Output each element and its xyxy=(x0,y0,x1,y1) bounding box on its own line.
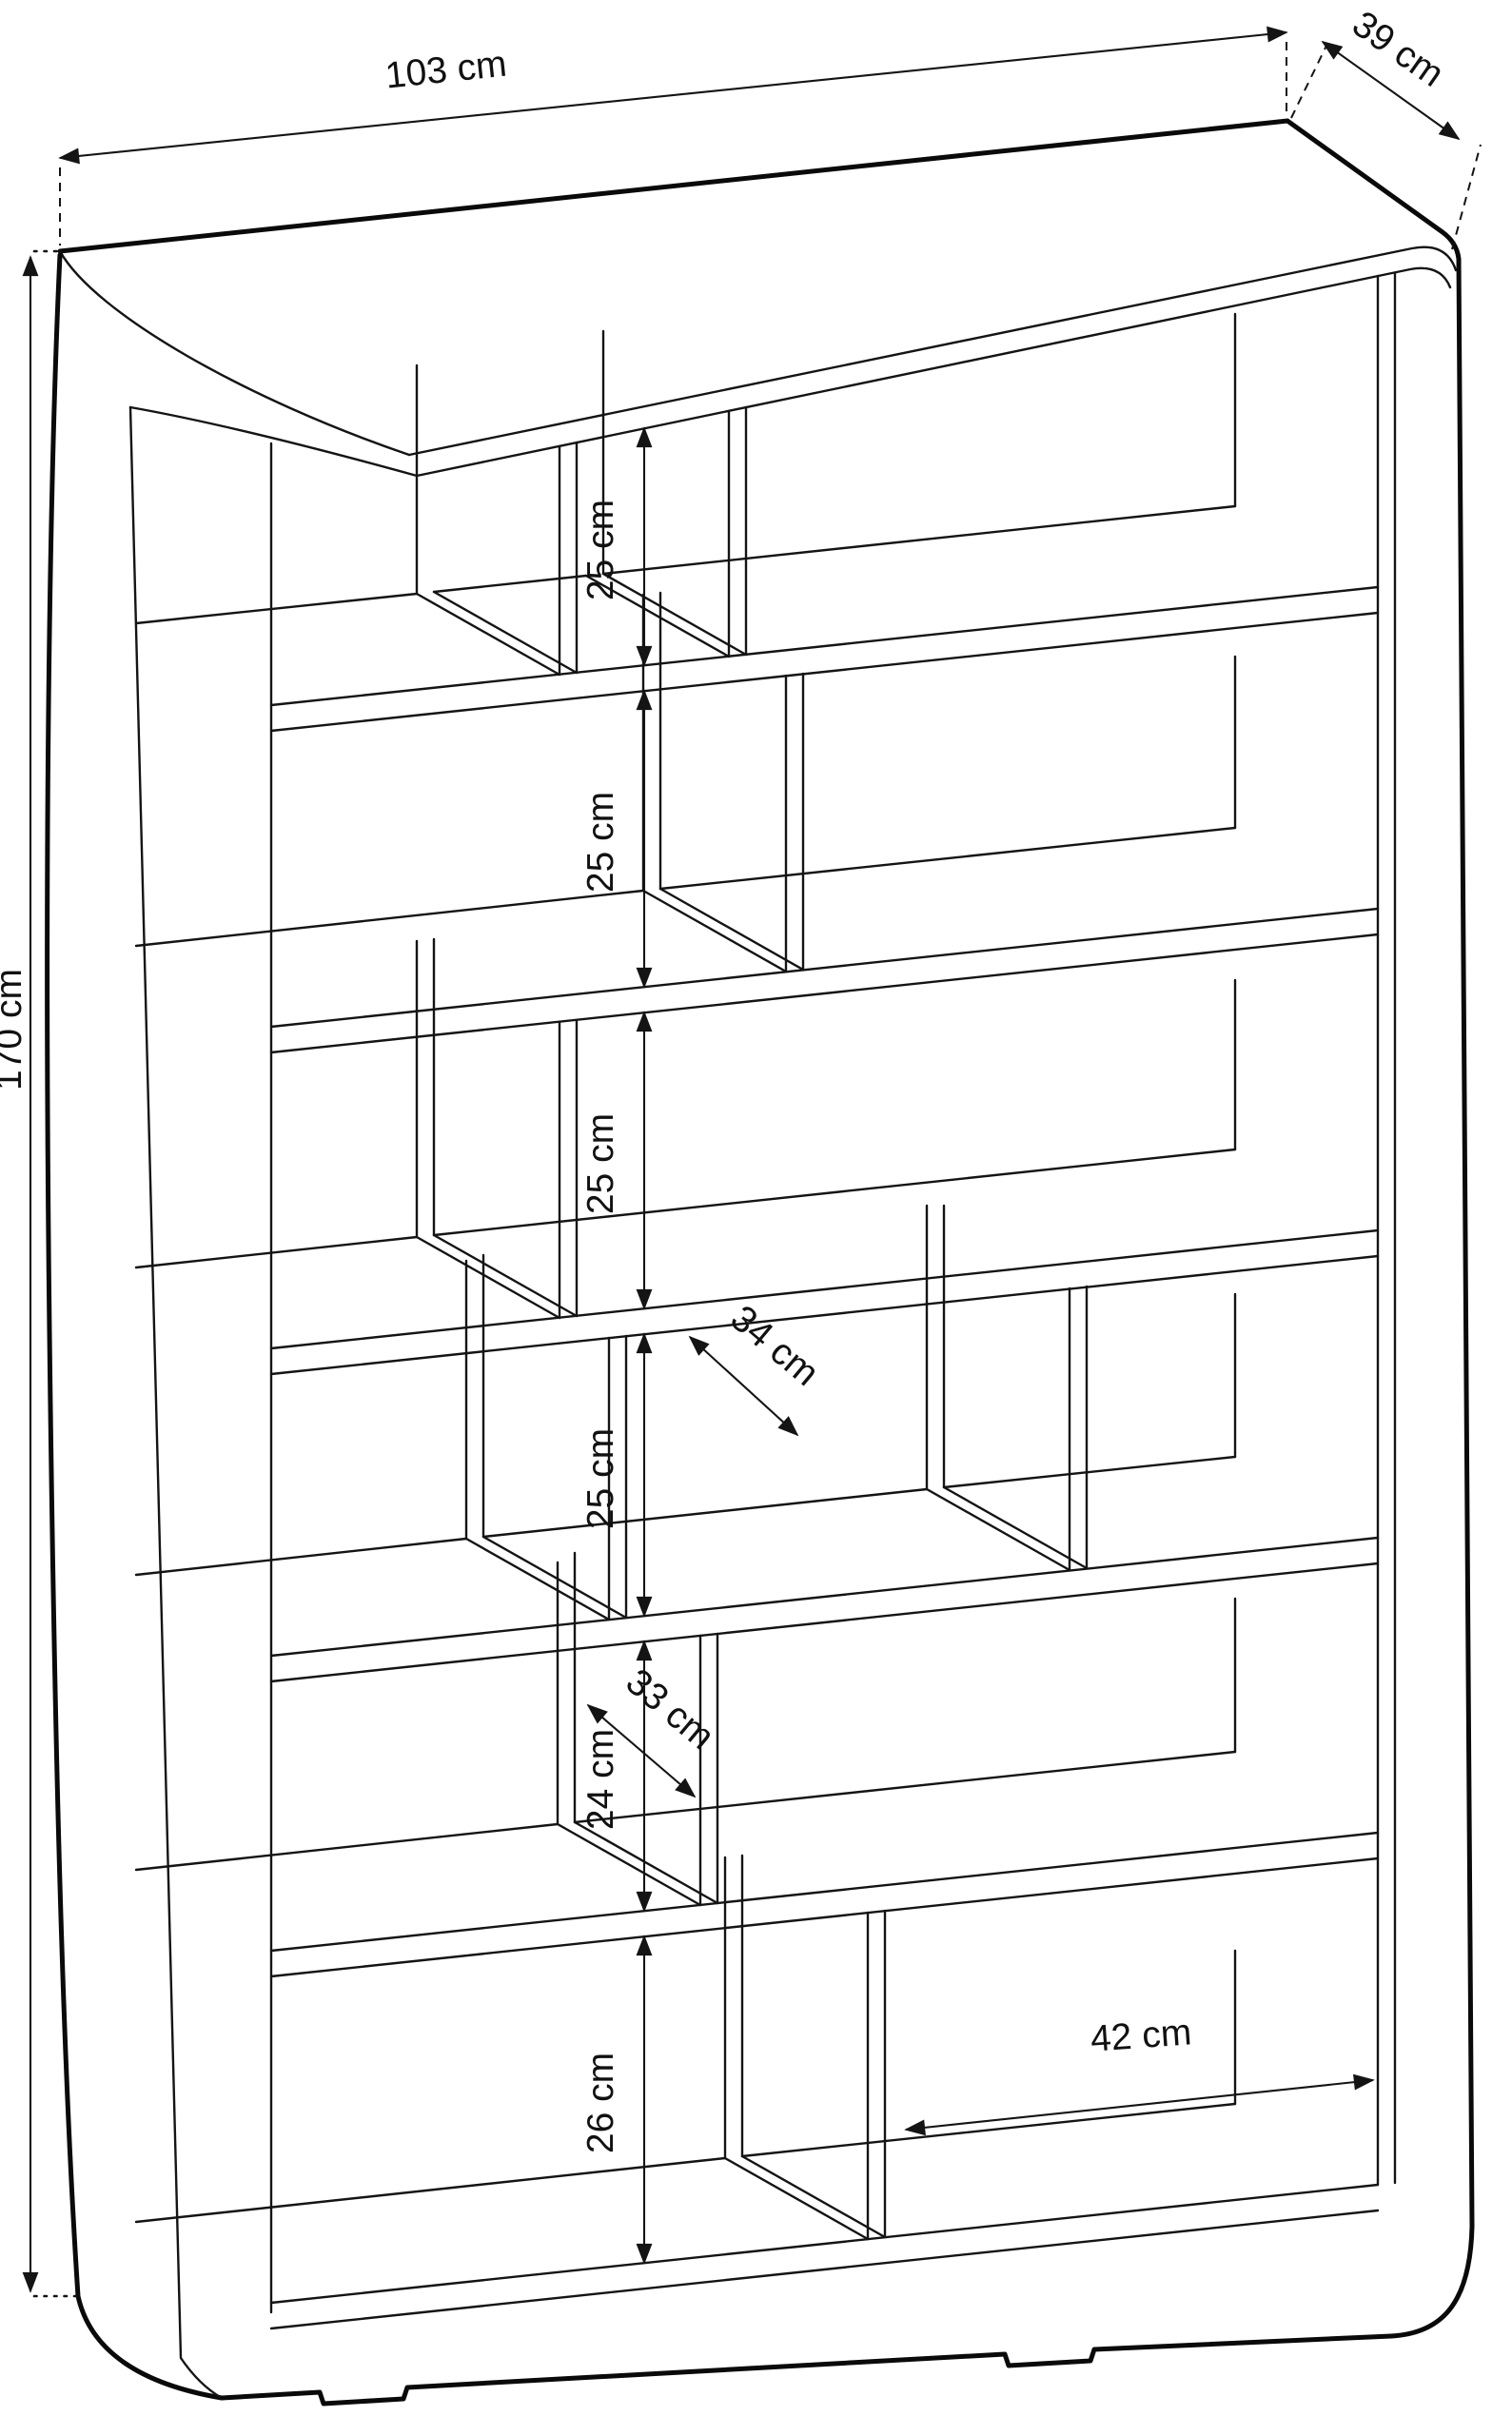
row2-height-label: 25 cm xyxy=(580,792,621,893)
top-panel xyxy=(60,121,1459,476)
height-label: 170 cm xyxy=(0,969,29,1090)
depth-label: 39 cm xyxy=(1345,4,1451,95)
dimension-depth: 39 cm xyxy=(1291,4,1481,249)
interior-depth-lines xyxy=(136,314,1235,2239)
left-side-panel xyxy=(48,255,271,2398)
dimension-compartments: 34 cm 33 cm 42 cm xyxy=(588,1298,1373,2130)
row6-height-label: 26 cm xyxy=(580,2053,621,2153)
compartment-34-label: 34 cm xyxy=(723,1298,827,1394)
bottom-plinth-edge xyxy=(222,2336,1391,2404)
drawing-page: 103 cm 39 cm 170 cm 25 cm 25 cm 25 cm 25… xyxy=(0,0,1512,2436)
row5-height-label: 24 cm xyxy=(580,1729,621,1830)
shelves xyxy=(271,587,1378,2328)
dimension-row-heights: 25 cm 25 cm 25 cm 25 cm 24 cm 26 cm xyxy=(580,428,644,2263)
right-side-panel xyxy=(1378,259,1472,2336)
bookshelf-dimension-drawing: 103 cm 39 cm 170 cm 25 cm 25 cm 25 cm 25… xyxy=(0,0,1512,2436)
width-label: 103 cm xyxy=(383,44,509,97)
row1-height-label: 25 cm xyxy=(580,500,621,600)
compartment-42-label: 42 cm xyxy=(1090,2012,1193,2059)
vertical-dividers xyxy=(560,407,1087,2239)
row4-height-label: 25 cm xyxy=(580,1428,621,1529)
row3-height-label: 25 cm xyxy=(580,1113,621,1214)
cabinet-outline xyxy=(48,121,1472,2404)
